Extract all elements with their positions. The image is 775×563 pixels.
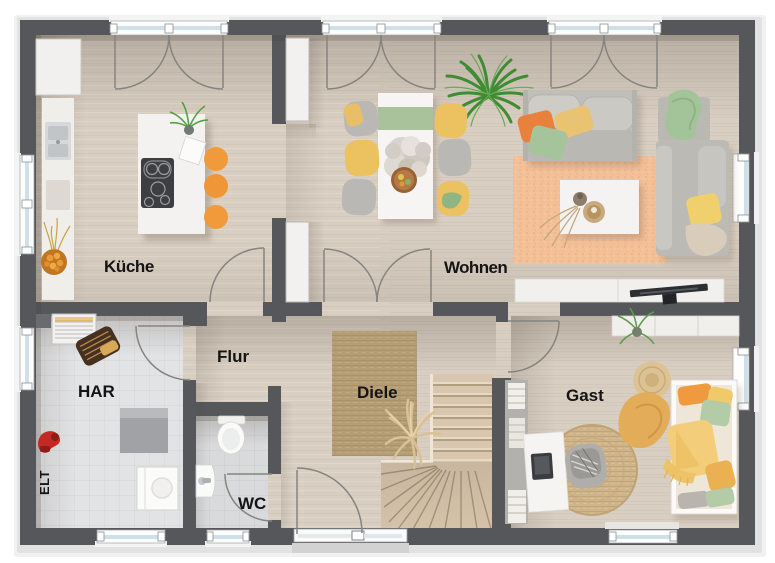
svg-text:Küche: Küche — [104, 257, 154, 276]
svg-text:Wohnen: Wohnen — [444, 258, 507, 277]
svg-text:Diele: Diele — [357, 383, 398, 402]
svg-text:WC: WC — [238, 494, 266, 513]
svg-text:Gast: Gast — [566, 386, 604, 405]
svg-text:Flur: Flur — [217, 347, 249, 366]
svg-text:HAR: HAR — [78, 382, 115, 401]
svg-text:ELT: ELT — [37, 470, 52, 495]
